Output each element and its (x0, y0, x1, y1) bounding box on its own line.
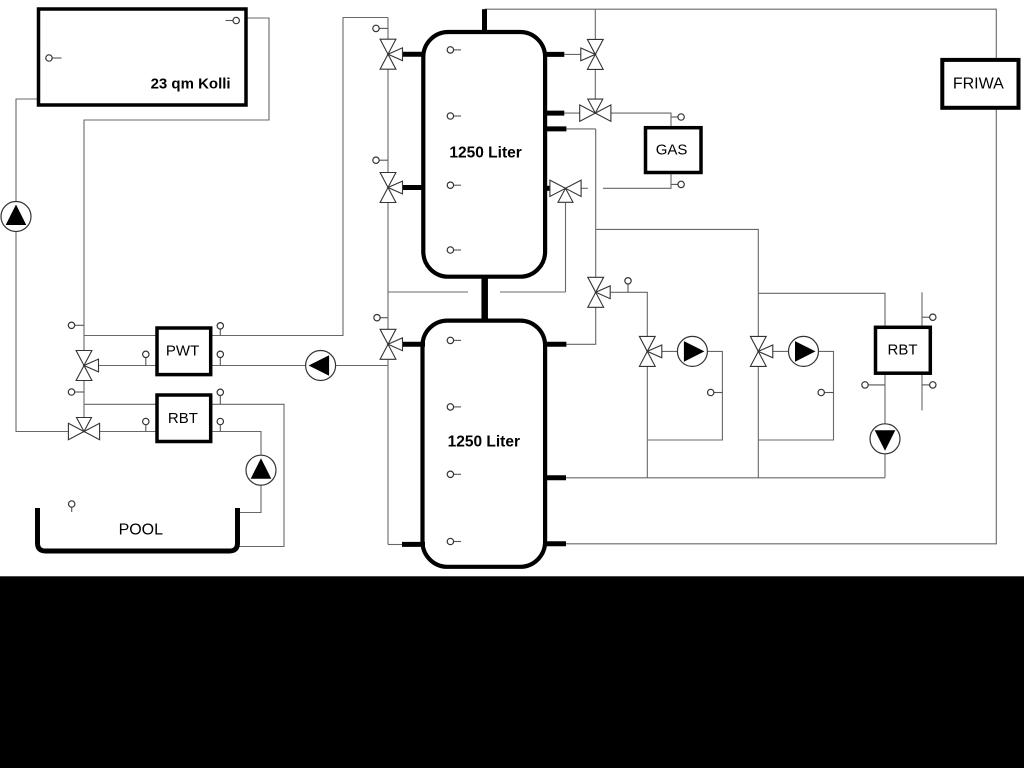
svg-text:RBT: RBT (888, 342, 918, 359)
svg-text:1250 Liter: 1250 Liter (448, 434, 520, 451)
svg-text:23 qm Kolli: 23 qm Kolli (151, 76, 231, 93)
svg-text:FRIWA: FRIWA (953, 76, 1004, 93)
svg-text:POOL: POOL (119, 522, 164, 539)
svg-text:GAS: GAS (656, 142, 688, 159)
svg-text:RBT: RBT (168, 410, 198, 427)
svg-text:1250 Liter: 1250 Liter (449, 145, 521, 162)
svg-text:PWT: PWT (166, 342, 199, 359)
